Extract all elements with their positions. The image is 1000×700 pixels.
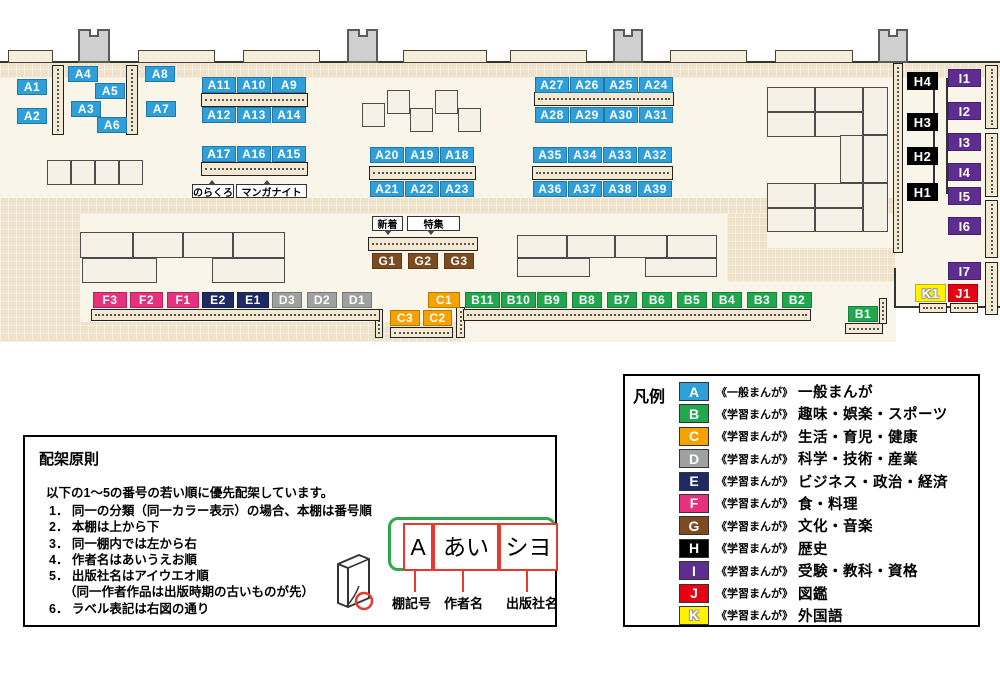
wall-shelf <box>8 50 53 63</box>
shelf-label-a17: A17 <box>202 146 236 162</box>
legend-row-k: K《学習まんが》外国語 <box>679 606 948 625</box>
bookshelf-vertical <box>879 298 887 324</box>
legend-category-label: ビジネス・政治・経済 <box>798 471 948 492</box>
map-note: 新着 <box>372 216 403 231</box>
shelf-label-b11: B11 <box>465 292 500 308</box>
legend-category-label: 図鑑 <box>798 583 828 604</box>
wall-line <box>933 80 935 198</box>
legend-scope: 《学習まんが》 <box>716 518 793 534</box>
legend-row-i: I《学習まんが》受験・教科・資格 <box>679 561 948 580</box>
legend-box: 凡例 A《一般まんが》一般まんがB《学習まんが》趣味・娯楽・スポーツC《学習まん… <box>623 374 980 627</box>
floor-map-page: A1A2A4A5A3A6A8A7A11A10A9A12A13A14A17A16A… <box>0 0 1000 700</box>
shelf-label-b5: B5 <box>677 292 707 308</box>
shelf-label-h1: H1 <box>907 183 938 201</box>
wall-shelf <box>138 50 215 63</box>
shelf-label-f1: F1 <box>167 292 199 308</box>
diagram-pointer-line <box>414 570 416 592</box>
shelf-label-a14: A14 <box>272 107 306 123</box>
shelf-label-i6: I6 <box>948 217 981 235</box>
pillar-notch <box>89 29 99 37</box>
shelf-label-a6: A6 <box>97 117 127 133</box>
shelf-label-c1: C1 <box>428 292 460 308</box>
reading-table <box>567 235 615 258</box>
legend-color-chip: K <box>679 606 709 625</box>
shelf-label-g1: G1 <box>372 253 402 269</box>
shelf-label-h2: H2 <box>907 147 938 165</box>
reading-table <box>95 160 119 185</box>
shelf-label-a31: A31 <box>639 107 673 123</box>
shelf-label-a30: A30 <box>604 107 638 123</box>
bookshelf-horizontal <box>368 237 478 251</box>
shelf-label-b4: B4 <box>712 292 742 308</box>
reading-table <box>815 112 863 137</box>
legend-color-chip: F <box>679 494 709 513</box>
legend-category-label: 食・料理 <box>798 493 858 514</box>
reading-table <box>517 258 590 277</box>
reading-table <box>212 258 285 283</box>
legend-category-label: 文化・音楽 <box>798 515 873 536</box>
principles-line: 3． 同一棚内では左から右 <box>49 536 372 552</box>
reading-table <box>863 135 888 183</box>
shelf-label-h4: H4 <box>907 72 938 90</box>
bookshelf-horizontal <box>201 93 308 107</box>
legend-color-chip: H <box>679 539 709 558</box>
shelf-label-b9: B9 <box>537 292 567 308</box>
shelf-label-b1: B1 <box>848 306 878 322</box>
shelf-label-a32: A32 <box>638 147 672 163</box>
bookshelf-horizontal <box>201 162 308 176</box>
bookshelf-horizontal <box>950 303 978 313</box>
shelf-label-a13: A13 <box>237 107 271 123</box>
principles-line: 5． 出版社名はアイウエオ順 <box>49 568 372 584</box>
legend-color-chip: J <box>679 584 709 603</box>
legend-color-chip: B <box>679 404 709 423</box>
shelf-label-i1: I1 <box>948 69 981 87</box>
shelf-label-e2: E2 <box>202 292 234 308</box>
legend-row-h: H《学習まんが》歴史 <box>679 539 948 558</box>
reading-table <box>667 235 717 258</box>
bookshelf-horizontal <box>845 323 883 334</box>
bookshelf-vertical <box>985 262 998 315</box>
legend-row-e: E《学習まんが》ビジネス・政治・経済 <box>679 472 948 491</box>
shelf-label-a12: A12 <box>202 107 236 123</box>
pillar <box>613 29 643 63</box>
shelf-label-a22: A22 <box>405 181 439 197</box>
shelf-label-g2: G2 <box>408 253 438 269</box>
shelf-label-i4: I4 <box>948 163 981 181</box>
shelf-label-a3: A3 <box>71 101 101 117</box>
shelf-label-a23: A23 <box>440 181 474 197</box>
reading-table <box>387 90 410 114</box>
pillar-notch <box>888 29 898 37</box>
principles-line: （同一作者作品は出版時期の古いものが先） <box>49 584 372 600</box>
legend-category-label: 歴史 <box>798 538 828 559</box>
shelf-label-a26: A26 <box>570 77 604 93</box>
legend-color-chip: G <box>679 516 709 535</box>
shelf-label-b10: B10 <box>501 292 536 308</box>
reading-table <box>767 87 815 112</box>
pillar <box>878 29 908 63</box>
reading-table <box>767 183 815 208</box>
reading-table <box>233 232 285 258</box>
shelf-label-a25: A25 <box>604 77 638 93</box>
wall-shelf <box>670 50 747 63</box>
shelf-label-a39: A39 <box>638 181 672 197</box>
shelf-label-e1: E1 <box>237 292 269 308</box>
bookshelf-vertical <box>893 63 903 253</box>
wall-shelf <box>775 50 853 63</box>
shelf-label-i3: I3 <box>948 133 981 151</box>
shelf-label-a21: A21 <box>370 181 404 197</box>
diagram-shelf-code-label: 棚記号 <box>392 593 431 612</box>
shelf-label-a34: A34 <box>568 147 602 163</box>
map-note: 特集 <box>407 216 460 231</box>
legend-scope: 《学習まんが》 <box>716 563 793 579</box>
shelf-label-j1: J1 <box>948 284 978 302</box>
shelf-label-b6: B6 <box>642 292 672 308</box>
reading-table <box>815 87 863 112</box>
shelf-label-d2: D2 <box>307 292 337 308</box>
map-note: のらくろ <box>192 184 234 198</box>
shelf-label-d3: D3 <box>272 292 302 308</box>
legend-scope: 《学習まんが》 <box>716 428 793 444</box>
shelf-label-f2: F2 <box>130 292 163 308</box>
legend-title: 凡例 <box>633 383 665 407</box>
diagram-pointer-line <box>462 570 464 592</box>
shelf-label-i2: I2 <box>948 102 981 120</box>
diagram-author-label: 作者名 <box>444 593 483 612</box>
reading-table <box>863 183 888 232</box>
diagram-publisher-box: シヨ <box>499 523 558 571</box>
shelf-label-b3: B3 <box>747 292 777 308</box>
reading-table <box>362 103 385 127</box>
shelf-label-a5: A5 <box>95 83 125 99</box>
wall-shelf <box>403 50 487 63</box>
shelf-label-a36: A36 <box>533 181 567 197</box>
shelf-label-a29: A29 <box>570 107 604 123</box>
reading-table <box>435 90 458 114</box>
shelf-label-i7: I7 <box>948 262 981 280</box>
shelf-label-a4: A4 <box>68 66 98 82</box>
diagram-author-box: あい <box>433 523 499 571</box>
shelf-label-c3: C3 <box>390 310 420 326</box>
pillar-notch <box>623 29 633 37</box>
reading-table <box>71 160 95 185</box>
principles-line: 2． 本棚は上から下 <box>49 519 372 535</box>
shelf-label-b8: B8 <box>572 292 602 308</box>
bookshelf-horizontal <box>534 92 674 106</box>
shelf-label-a20: A20 <box>370 147 404 163</box>
reading-table <box>183 232 233 258</box>
bookshelf-horizontal <box>919 303 947 313</box>
principles-line: 6． ラベル表記は右図の通り <box>49 601 372 617</box>
diagram-pointer-line <box>526 570 528 592</box>
reading-table <box>815 208 863 232</box>
wall-shelf <box>243 50 320 63</box>
legend-row-j: J《学習まんが》図鑑 <box>679 584 948 603</box>
reading-table <box>80 232 133 258</box>
wall-line <box>894 268 896 308</box>
reading-table <box>82 258 157 283</box>
shelf-label-a28: A28 <box>535 107 569 123</box>
legend-color-chip: E <box>679 472 709 491</box>
legend-category-label: 一般まんが <box>798 381 873 402</box>
diagram-publisher-label: 出版社名 <box>506 593 558 612</box>
reading-table <box>133 232 183 258</box>
legend-category-label: 科学・技術・産業 <box>798 448 918 469</box>
pillar <box>78 29 110 63</box>
shelf-label-a2: A2 <box>17 108 47 124</box>
shelf-label-a8: A8 <box>145 66 175 82</box>
legend-rows: A《一般まんが》一般まんがB《学習まんが》趣味・娯楽・スポーツC《学習まんが》生… <box>679 382 948 625</box>
bookshelf-horizontal <box>390 327 453 338</box>
legend-scope: 《学習まんが》 <box>716 451 793 467</box>
legend-category-label: 外国語 <box>798 605 843 626</box>
reading-table <box>863 87 888 135</box>
shelf-label-a10: A10 <box>237 77 271 93</box>
shelf-label-k1: K1 <box>915 284 946 302</box>
bookshelf-vertical <box>985 65 998 129</box>
legend-scope: 《一般まんが》 <box>716 384 793 400</box>
wall-shelf <box>510 50 587 63</box>
legend-scope: 《学習まんが》 <box>716 473 793 489</box>
reading-table <box>767 112 815 137</box>
bookshelf-horizontal <box>463 309 811 321</box>
legend-row-b: B《学習まんが》趣味・娯楽・スポーツ <box>679 404 948 423</box>
map-note: マンガナイト <box>236 184 307 198</box>
principles-list: 1． 同一の分類（同一カラー表示）の場合、本棚は番号順2． 本棚は上から下3． … <box>49 503 372 617</box>
bookshelf-horizontal <box>532 166 673 180</box>
shelf-label-a18: A18 <box>440 147 474 163</box>
bookshelf-horizontal <box>91 309 380 321</box>
reading-table <box>517 235 567 258</box>
shelf-label-a16: A16 <box>237 146 271 162</box>
pillar-notch <box>358 29 368 37</box>
reading-table <box>47 160 71 185</box>
shelf-label-a1: A1 <box>17 79 47 95</box>
shelf-label-b7: B7 <box>607 292 637 308</box>
legend-scope: 《学習まんが》 <box>716 406 793 422</box>
walkway <box>0 198 895 214</box>
principles-line: 4． 作者名はあいうえお順 <box>49 552 372 568</box>
legend-scope: 《学習まんが》 <box>716 540 793 556</box>
legend-row-c: C《学習まんが》生活・育児・健康 <box>679 427 948 446</box>
shelf-label-a24: A24 <box>639 77 673 93</box>
principles-title: 配架原則 <box>39 448 99 469</box>
legend-row-d: D《学習まんが》科学・技術・産業 <box>679 449 948 468</box>
reading-table <box>615 235 667 258</box>
shelf-label-i5: I5 <box>948 187 981 205</box>
legend-color-chip: D <box>679 449 709 468</box>
shelf-label-a27: A27 <box>535 77 569 93</box>
shelf-label-d1: D1 <box>342 292 372 308</box>
principles-line: 1． 同一の分類（同一カラー表示）の場合、本棚は番号順 <box>49 503 372 519</box>
legend-category-label: 受験・教科・資格 <box>798 560 918 581</box>
reading-table <box>840 135 863 183</box>
diagram-shelf-code-box: A <box>403 523 433 571</box>
shelf-label-a11: A11 <box>202 77 236 93</box>
legend-scope: 《学習まんが》 <box>716 607 793 623</box>
shelf-label-a15: A15 <box>272 146 306 162</box>
legend-color-chip: C <box>679 427 709 446</box>
bookshelf-vertical <box>126 65 138 135</box>
pillar <box>347 29 378 63</box>
reading-table <box>815 183 863 208</box>
shelf-label-a9: A9 <box>272 77 306 93</box>
reading-table <box>410 108 433 132</box>
legend-row-a: A《一般まんが》一般まんが <box>679 382 948 401</box>
bookshelf-vertical <box>985 200 998 258</box>
book-icon <box>326 548 378 612</box>
legend-row-f: F《学習まんが》食・料理 <box>679 494 948 513</box>
shelf-label-a33: A33 <box>603 147 637 163</box>
legend-scope: 《学習まんが》 <box>716 585 793 601</box>
legend-color-chip: I <box>679 561 709 580</box>
walkway <box>727 248 895 282</box>
bookshelf-vertical <box>985 133 998 197</box>
shelf-label-b2: B2 <box>782 292 812 308</box>
principles-intro: 以下の1～5の番号の若い順に優先配架しています。 <box>46 482 333 501</box>
legend-scope: 《学習まんが》 <box>716 495 793 511</box>
shelf-label-a7: A7 <box>146 101 176 117</box>
reading-table <box>645 258 717 277</box>
shelf-label-a35: A35 <box>533 147 567 163</box>
shelf-label-a19: A19 <box>405 147 439 163</box>
bookshelf-vertical <box>52 65 64 135</box>
shelf-label-g3: G3 <box>444 253 474 269</box>
reading-table <box>119 160 143 185</box>
legend-category-label: 趣味・娯楽・スポーツ <box>798 403 948 424</box>
shelf-label-h3: H3 <box>907 113 938 131</box>
reading-table <box>767 208 815 232</box>
shelf-label-f3: F3 <box>93 292 127 308</box>
legend-row-g: G《学習まんが》文化・音楽 <box>679 516 948 535</box>
bookshelf-horizontal <box>369 166 476 180</box>
legend-color-chip: A <box>679 382 709 401</box>
shelf-label-a38: A38 <box>603 181 637 197</box>
shelf-label-c2: C2 <box>423 310 452 326</box>
shelf-label-a37: A37 <box>568 181 602 197</box>
legend-category-label: 生活・育児・健康 <box>798 426 918 447</box>
reading-table <box>458 108 481 132</box>
